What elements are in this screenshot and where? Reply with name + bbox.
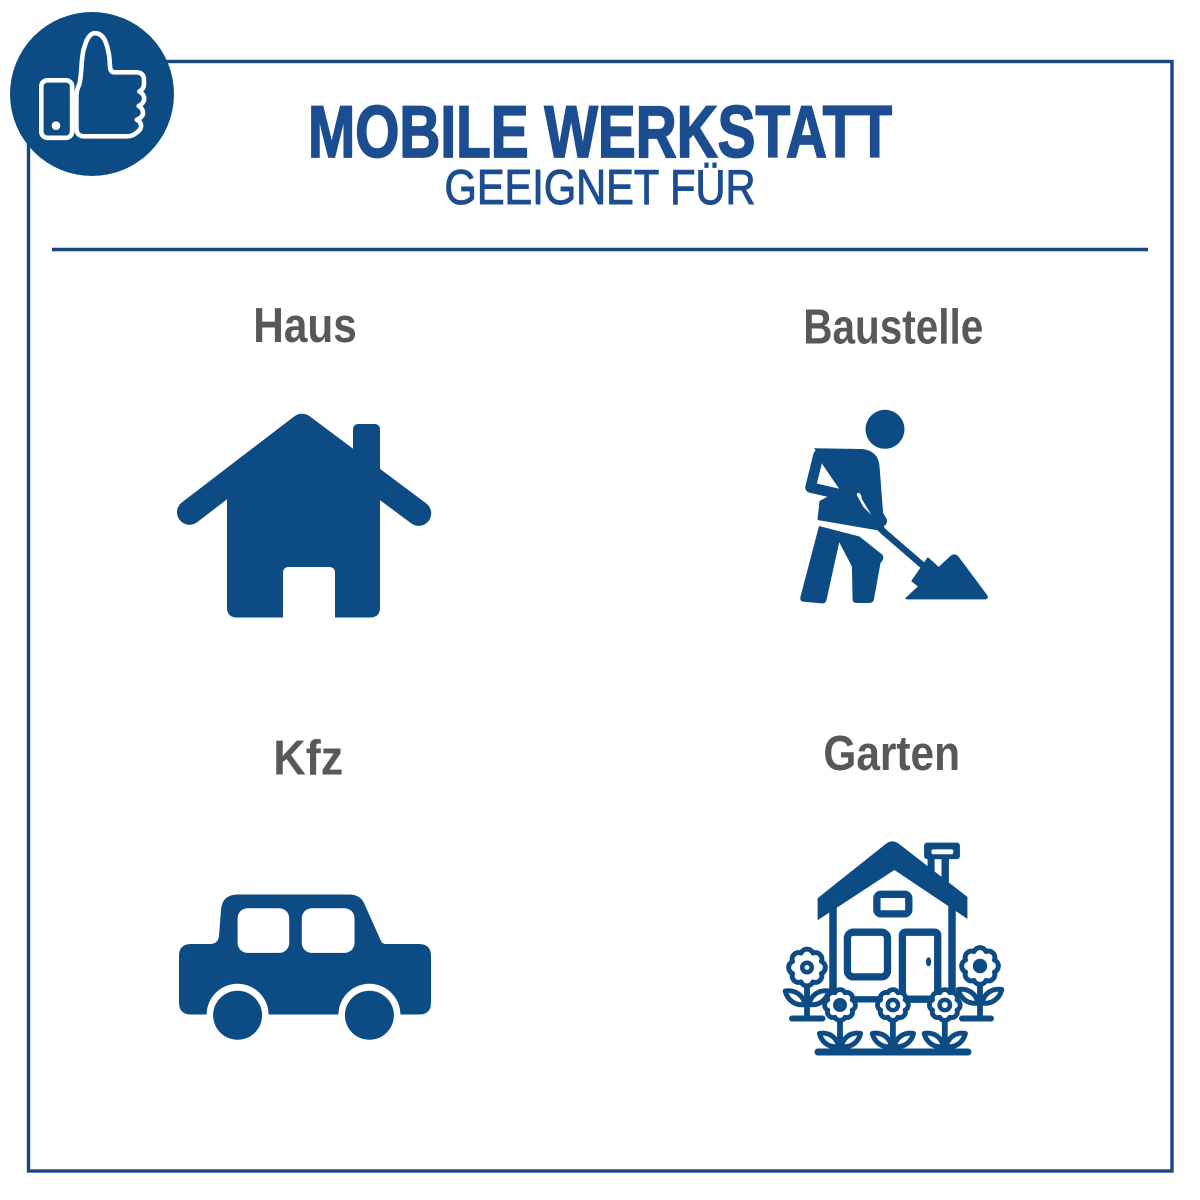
svg-text:GEEIGNET FÜR: GEEIGNET FÜR — [445, 161, 756, 215]
svg-text:Baustelle: Baustelle — [803, 300, 983, 354]
svg-text:Kfz: Kfz — [273, 732, 343, 786]
svg-text:Haus: Haus — [253, 299, 357, 353]
svg-text:Garten: Garten — [823, 727, 960, 781]
